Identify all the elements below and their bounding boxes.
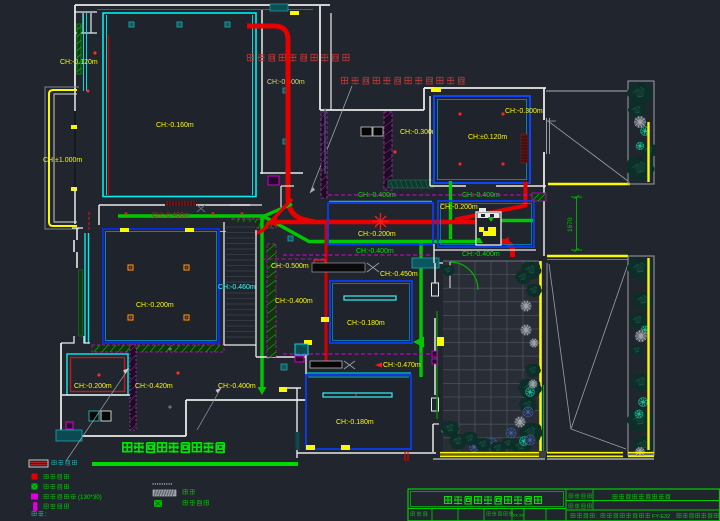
svg-text::: : — [45, 511, 47, 518]
svg-text:CH:±0.120m: CH:±0.120m — [468, 134, 507, 141]
svg-text:CH:-0.200m: CH:-0.200m — [74, 383, 112, 390]
svg-text:CH:-0.200m: CH:-0.200m — [136, 302, 174, 309]
svg-text:CH:-0.400m: CH:-0.400m — [218, 383, 256, 390]
svg-text:CH:-0.200m: CH:-0.200m — [358, 231, 396, 238]
svg-text:CH:-0.300m: CH:-0.300m — [505, 108, 543, 115]
svg-text:CH:-0.450m: CH:-0.450m — [380, 271, 418, 278]
svg-text:CH:-0.400m: CH:-0.400m — [358, 192, 396, 199]
svg-text:CH:-0.400m: CH:-0.400m — [275, 298, 313, 305]
svg-text:FY-E32: FY-E32 — [652, 514, 670, 520]
svg-text:1670: 1670 — [567, 217, 574, 232]
svg-text:xx.xx: xx.xx — [513, 514, 525, 519]
svg-text:CH:-0.400m: CH:-0.400m — [462, 251, 500, 258]
svg-text:CH:-0.400m: CH:-0.400m — [462, 192, 500, 199]
svg-text:CH:-0.500m: CH:-0.500m — [271, 263, 309, 270]
svg-text:(130*30): (130*30) — [78, 494, 102, 501]
svg-text:CH:-0.160m: CH:-0.160m — [156, 122, 194, 129]
svg-text:CH:-0.470m: CH:-0.470m — [383, 362, 421, 369]
svg-text:CH:-0.460m: CH:-0.460m — [218, 284, 256, 291]
svg-text:CH:-0.400m: CH:-0.400m — [152, 212, 190, 219]
svg-text:CH:-0.400m: CH:-0.400m — [356, 248, 394, 255]
svg-text:CH:-0.120m: CH:-0.120m — [60, 59, 98, 66]
svg-text:CH:±1.000m: CH:±1.000m — [43, 157, 82, 164]
svg-text:CH:-0.180m: CH:-0.180m — [347, 320, 385, 327]
svg-text:CH:-0.180m: CH:-0.180m — [336, 419, 374, 426]
svg-text:CH:-0.200m: CH:-0.200m — [440, 204, 478, 211]
svg-text:CH:-0.300m: CH:-0.300m — [400, 129, 438, 136]
svg-text:CH:-0.420m: CH:-0.420m — [135, 383, 173, 390]
